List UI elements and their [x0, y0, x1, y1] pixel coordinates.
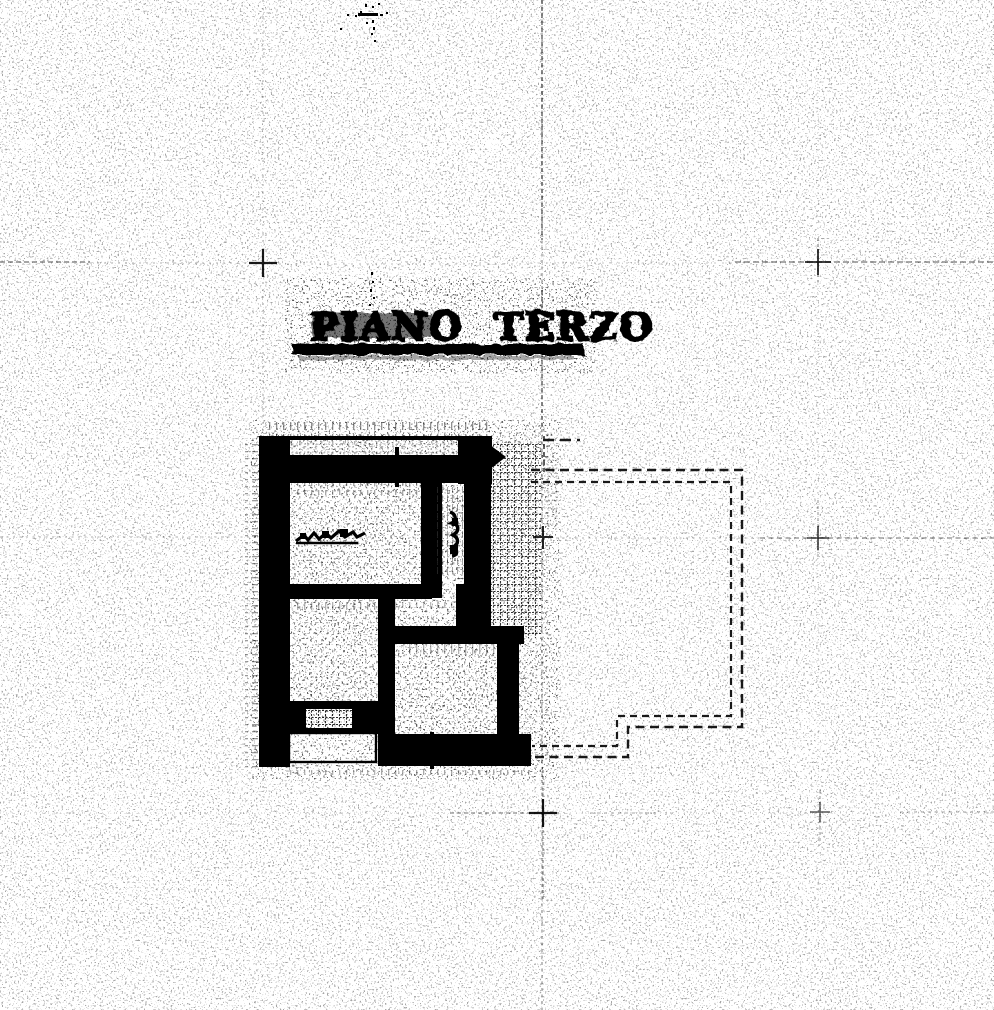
scan-grain-overlay	[0, 0, 994, 1010]
scanned-floorplan-page: PIANO TERZO	[0, 0, 994, 1010]
floorplan-drawing: PIANO TERZO	[0, 0, 994, 1010]
